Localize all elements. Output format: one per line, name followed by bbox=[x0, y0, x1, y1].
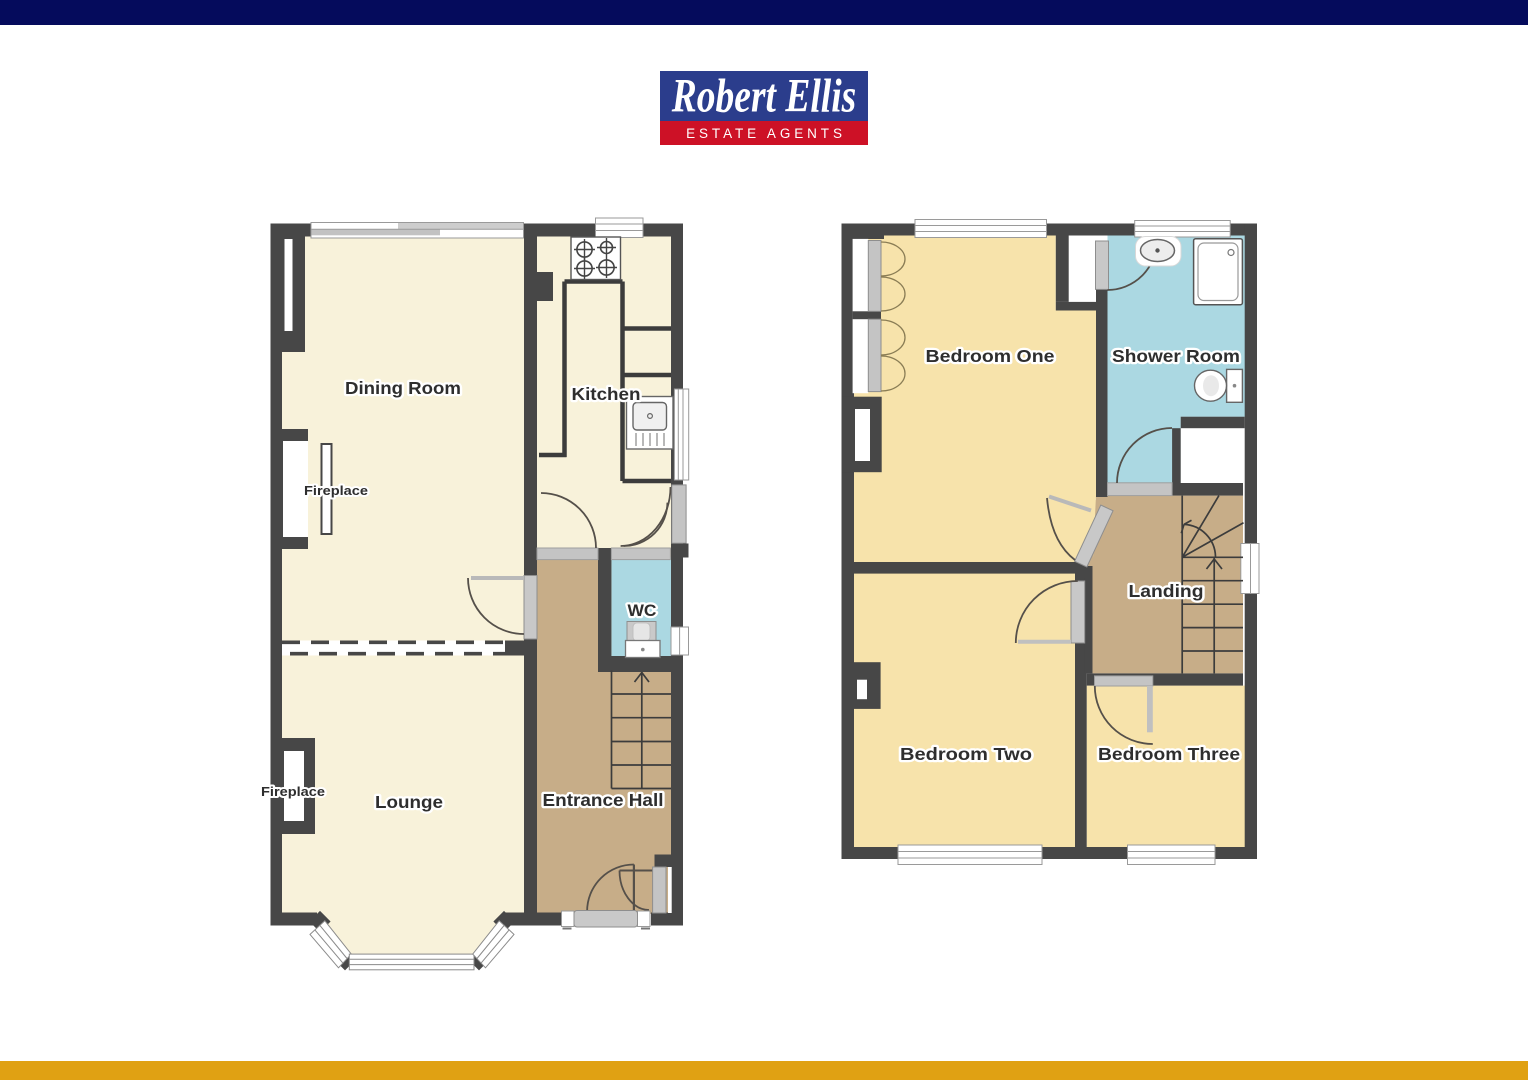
svg-text:Bedroom One: Bedroom One bbox=[926, 346, 1055, 366]
svg-text:Kitchen: Kitchen bbox=[572, 384, 641, 404]
svg-text:Landing: Landing bbox=[1129, 581, 1204, 601]
svg-text:Fireplace: Fireplace bbox=[304, 483, 368, 498]
svg-text:Fireplace: Fireplace bbox=[261, 784, 325, 799]
svg-text:Entrance Hall: Entrance Hall bbox=[543, 790, 664, 810]
svg-text:Lounge: Lounge bbox=[375, 792, 443, 812]
svg-text:Shower Room: Shower Room bbox=[1112, 346, 1240, 366]
svg-text:Bedroom Two: Bedroom Two bbox=[900, 744, 1032, 764]
svg-text:Dining Room: Dining Room bbox=[345, 378, 461, 398]
svg-text:WC: WC bbox=[628, 601, 657, 620]
svg-text:Bedroom Three: Bedroom Three bbox=[1098, 744, 1240, 764]
